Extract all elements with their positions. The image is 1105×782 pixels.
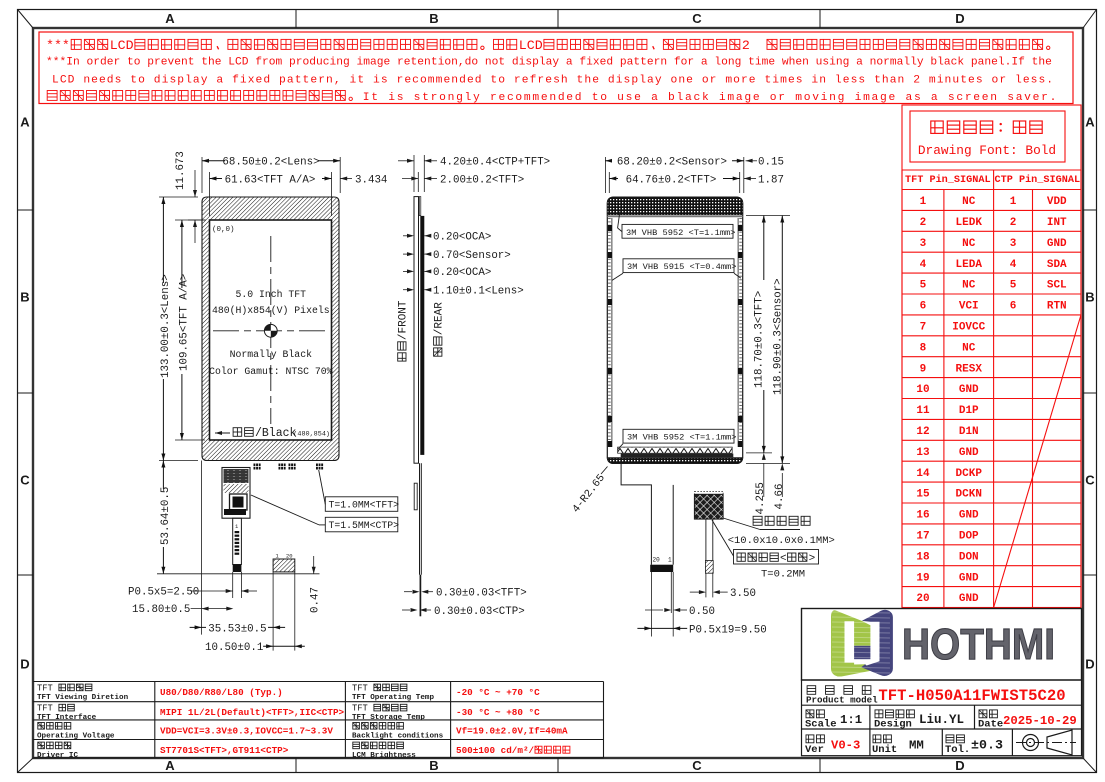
svg-text:TFT-H050A11FWIST5C20: TFT-H050A11FWIST5C20 <box>878 687 1065 705</box>
svg-text:/REAR: /REAR <box>434 302 446 335</box>
svg-text:HOTHMI: HOTHMI <box>902 620 1055 669</box>
svg-text:Operating Voltage: Operating Voltage <box>37 732 115 740</box>
svg-text:7: 7 <box>920 322 927 334</box>
svg-text:11: 11 <box>916 405 930 417</box>
svg-text:Scale: Scale <box>805 719 837 731</box>
svg-text:53.64±0.5: 53.64±0.5 <box>160 487 172 545</box>
svg-text:/FRONT: /FRONT <box>398 300 410 340</box>
svg-text:0.20<OCA>: 0.20<OCA> <box>433 232 491 244</box>
svg-text:VDD=VCI=3.3V±0.3,IOVCC=1.7~3.3: VDD=VCI=3.3V±0.3,IOVCC=1.7~3.3V <box>160 725 333 736</box>
svg-text:GND: GND <box>1047 238 1067 250</box>
svg-text:19: 19 <box>916 572 929 584</box>
svg-text:TFT: TFT <box>352 704 368 714</box>
svg-text:(480,854): (480,854) <box>293 431 330 439</box>
svg-text:B: B <box>20 290 29 305</box>
svg-text:35.53±0.5: 35.53±0.5 <box>208 624 266 636</box>
svg-text:GND: GND <box>959 510 979 522</box>
svg-text:4: 4 <box>1010 259 1017 271</box>
svg-text:D: D <box>955 11 964 26</box>
svg-text:3M VHB 5915 <T=0.4mm>: 3M VHB 5915 <T=0.4mm> <box>627 262 736 272</box>
svg-text:3.434: 3.434 <box>355 175 387 187</box>
svg-text:2: 2 <box>920 217 927 229</box>
svg-text:VCI: VCI <box>959 301 979 313</box>
svg-text:ST7701S<TFT>,GT911<CTP>: ST7701S<TFT>,GT911<CTP> <box>160 745 289 756</box>
svg-text:5.0 Inch TFT: 5.0 Inch TFT <box>236 289 307 300</box>
svg-text:20: 20 <box>916 593 929 605</box>
svg-text:Color Gamut: NTSC 70%: Color Gamut: NTSC 70% <box>209 366 333 377</box>
svg-text:INT: INT <box>1047 217 1067 229</box>
svg-text:3M VHB 5952 <T=1.1mm>: 3M VHB 5952 <T=1.1mm> <box>626 228 735 238</box>
svg-text:68.20±0.2<Sensor>: 68.20±0.2<Sensor> <box>617 157 727 169</box>
svg-text:0.20<OCA>: 0.20<OCA> <box>433 267 491 279</box>
svg-text:14: 14 <box>916 468 930 480</box>
svg-text:A: A <box>20 115 30 130</box>
svg-text:0.70<Sensor>: 0.70<Sensor> <box>433 250 511 262</box>
svg-text:3M VHB 5952 <T=1.1mm>: 3M VHB 5952 <T=1.1mm> <box>627 433 736 443</box>
svg-text:11.673: 11.673 <box>175 151 187 190</box>
svg-text:D: D <box>955 758 964 773</box>
svg-text:3: 3 <box>920 238 927 250</box>
svg-text:MM: MM <box>909 739 924 753</box>
svg-text:5: 5 <box>920 280 927 292</box>
svg-text:RESX: RESX <box>956 363 983 375</box>
svg-text:2: 2 <box>1010 217 1017 229</box>
svg-text:(0,0): (0,0) <box>212 226 235 234</box>
svg-text:Date: Date <box>978 719 1003 731</box>
svg-text:A: A <box>165 758 175 773</box>
svg-text:D1P: D1P <box>959 405 979 417</box>
svg-text:Driver IC: Driver IC <box>37 752 78 760</box>
svg-text:>: > <box>809 553 816 565</box>
svg-text:C: C <box>1085 473 1095 488</box>
svg-text:15: 15 <box>916 489 930 501</box>
svg-text:133.00±0.3<Lens>: 133.00±0.3<Lens> <box>160 274 172 378</box>
svg-text:NC: NC <box>962 238 976 250</box>
svg-text:13: 13 <box>916 447 930 459</box>
svg-text:6: 6 <box>920 301 927 313</box>
svg-text:0.47: 0.47 <box>310 587 322 613</box>
svg-text:DON: DON <box>959 551 979 563</box>
svg-text:SDA: SDA <box>1047 259 1067 271</box>
svg-text:12: 12 <box>916 426 929 438</box>
svg-text:118.70±0.3<TFT>: 118.70±0.3<TFT> <box>754 291 766 388</box>
svg-text:500±100 cd/m²/: 500±100 cd/m²/ <box>456 745 535 756</box>
svg-text:LEDK: LEDK <box>956 217 983 229</box>
svg-text:68.50±0.2<Lens>: 68.50±0.2<Lens> <box>222 157 319 169</box>
svg-text:Backlight conditions: Backlight conditions <box>352 732 444 740</box>
svg-text:GND: GND <box>959 593 979 605</box>
svg-text:<10.0x10.0x0.1MM>: <10.0x10.0x0.1MM> <box>728 535 835 547</box>
svg-text:3: 3 <box>1010 238 1017 250</box>
svg-text:CTP Pin_SIGNAL: CTP Pin_SIGNAL <box>995 174 1081 186</box>
svg-text:-30 °C ~ +80 °C: -30 °C ~ +80 °C <box>456 707 540 718</box>
svg-text:480(H)x854(V) Pixels: 480(H)x854(V) Pixels <box>212 305 330 316</box>
svg-text:±0.3: ±0.3 <box>971 738 1003 753</box>
svg-text:MIPI 1L/2L(Default)<TFT>,IIC<C: MIPI 1L/2L(Default)<TFT>,IIC<CTP> <box>160 707 345 718</box>
svg-text:GND: GND <box>959 447 979 459</box>
svg-text:Vf=19.0±2.0V,If=40mA: Vf=19.0±2.0V,If=40mA <box>456 725 568 736</box>
svg-text:2025-10-29: 2025-10-29 <box>1003 714 1077 728</box>
svg-text:2: 2 <box>742 38 750 53</box>
svg-text:D1N: D1N <box>959 426 979 438</box>
svg-text:Liu.YL: Liu.YL <box>919 713 964 727</box>
svg-text:***In order to prevent the LCD: ***In order to prevent the LCD from prod… <box>46 57 1052 69</box>
svg-text:15.80±0.5: 15.80±0.5 <box>132 604 190 616</box>
svg-text:109.65<TFT A/A>: 109.65<TFT A/A> <box>179 274 191 371</box>
svg-text:0.30±0.03<TFT>: 0.30±0.03<TFT> <box>436 588 527 600</box>
svg-text:B: B <box>429 11 438 26</box>
svg-text:TFT Storage Temp: TFT Storage Temp <box>352 714 425 722</box>
svg-text:Product model: Product model <box>806 695 878 706</box>
svg-text:A: A <box>1085 115 1095 130</box>
svg-text:DCKN: DCKN <box>956 489 982 501</box>
svg-text:U80/D80/R80/L80 (Typ.): U80/D80/R80/L80 (Typ.) <box>160 687 283 698</box>
svg-text:Ver: Ver <box>805 744 824 756</box>
svg-text:1: 1 <box>1010 196 1017 208</box>
svg-text:1.10±0.1<Lens>: 1.10±0.1<Lens> <box>433 286 524 298</box>
svg-text:0.15: 0.15 <box>758 157 784 169</box>
svg-text:TFT: TFT <box>37 704 53 714</box>
svg-text:5: 5 <box>1010 280 1017 292</box>
svg-text:TFT Operating Temp: TFT Operating Temp <box>352 694 434 702</box>
svg-text:20: 20 <box>286 553 293 560</box>
svg-text:VDD: VDD <box>1047 196 1067 208</box>
svg-text:B: B <box>429 758 438 773</box>
svg-text:1.87: 1.87 <box>758 175 784 187</box>
svg-text:1:1: 1:1 <box>840 713 862 727</box>
svg-text:C: C <box>20 473 30 488</box>
svg-text:LCM Brightness: LCM Brightness <box>352 752 416 760</box>
svg-text:118.90±0.3<Sensor>: 118.90±0.3<Sensor> <box>773 278 785 395</box>
svg-text:TFT Interface: TFT Interface <box>37 714 97 722</box>
svg-text:Tol.: Tol. <box>945 744 970 756</box>
svg-text:C: C <box>692 758 702 773</box>
svg-text:TFT: TFT <box>37 684 53 694</box>
svg-text:D: D <box>20 657 29 672</box>
svg-text:LEDA: LEDA <box>956 259 983 271</box>
svg-text:0.50: 0.50 <box>689 606 715 618</box>
svg-text:GND: GND <box>959 384 979 396</box>
svg-text:0.30±0.03<CTP>: 0.30±0.03<CTP> <box>434 606 525 618</box>
svg-text:TFT: TFT <box>352 684 368 694</box>
svg-text:18: 18 <box>916 551 930 563</box>
svg-text:LCD needs to display a fixed p: LCD needs to display a fixed pattern, it… <box>52 75 1054 87</box>
svg-text:NC: NC <box>962 196 976 208</box>
svg-text:T=0.2MM: T=0.2MM <box>761 569 805 581</box>
svg-text:Normally Black: Normally Black <box>230 349 312 360</box>
svg-text:T=1.5MM<CTP>: T=1.5MM<CTP> <box>329 520 400 531</box>
svg-text:Drawing Font: Bold: Drawing Font: Bold <box>918 143 1056 158</box>
svg-text:SCL: SCL <box>1047 280 1067 292</box>
svg-text:2.00±0.2<TFT>: 2.00±0.2<TFT> <box>440 175 524 187</box>
svg-text:3.50: 3.50 <box>730 588 756 600</box>
svg-text:17: 17 <box>916 531 929 543</box>
svg-text:1: 1 <box>920 196 927 208</box>
svg-text:9: 9 <box>920 363 927 375</box>
svg-text:TFT Viewing Diretion: TFT Viewing Diretion <box>37 694 129 702</box>
svg-text:4: 4 <box>920 259 927 271</box>
svg-text:NC: NC <box>962 280 976 292</box>
svg-text:P0.5x5=2.50: P0.5x5=2.50 <box>128 587 199 599</box>
svg-text:D: D <box>1085 657 1094 672</box>
svg-text:64.76±0.2<TFT>: 64.76±0.2<TFT> <box>626 175 717 187</box>
svg-text:GND: GND <box>959 572 979 584</box>
svg-text:Unit: Unit <box>872 744 897 756</box>
svg-text:4.20±0.4<CTP+TFT>: 4.20±0.4<CTP+TFT> <box>440 157 550 169</box>
svg-text:-20 °C ~ +70 °C: -20 °C ~ +70 °C <box>456 687 540 698</box>
svg-text:DOP: DOP <box>959 531 979 543</box>
svg-text:DCKP: DCKP <box>956 468 983 480</box>
svg-text:4.255: 4.255 <box>755 482 767 514</box>
svg-text:8: 8 <box>920 342 927 354</box>
svg-text:1: 1 <box>668 557 672 564</box>
svg-text:TFT Pin_SIGNAL: TFT Pin_SIGNAL <box>905 174 991 186</box>
svg-text:16: 16 <box>916 510 929 522</box>
svg-text:LCD: LCD <box>110 38 134 53</box>
svg-text:T=1.0MM<TFT>: T=1.0MM<TFT> <box>329 500 400 511</box>
svg-text:Design: Design <box>874 719 912 731</box>
svg-text:LCD: LCD <box>519 38 543 53</box>
svg-text:6: 6 <box>1010 301 1017 313</box>
svg-text:NC: NC <box>962 342 976 354</box>
svg-text:<: < <box>780 553 787 565</box>
svg-text:/Black: /Black <box>255 427 297 440</box>
svg-text:P0.5x19=9.50: P0.5x19=9.50 <box>689 624 767 636</box>
svg-text:B: B <box>1085 290 1094 305</box>
svg-text:A: A <box>165 11 175 26</box>
svg-text:RTN: RTN <box>1047 301 1067 313</box>
svg-text:V0-3: V0-3 <box>831 739 860 753</box>
svg-text:10.50±0.1: 10.50±0.1 <box>205 642 263 654</box>
svg-text:***: *** <box>46 38 70 53</box>
svg-text:It is strongly recommended to: It is strongly recommended to use a blac… <box>363 92 1058 104</box>
svg-text:IOVCC: IOVCC <box>952 322 985 334</box>
svg-text:20: 20 <box>653 557 661 564</box>
svg-text:61.63<TFT A/A>: 61.63<TFT A/A> <box>225 175 316 187</box>
svg-text:C: C <box>692 11 702 26</box>
svg-text:10: 10 <box>916 384 929 396</box>
svg-text:4.66: 4.66 <box>774 484 786 510</box>
